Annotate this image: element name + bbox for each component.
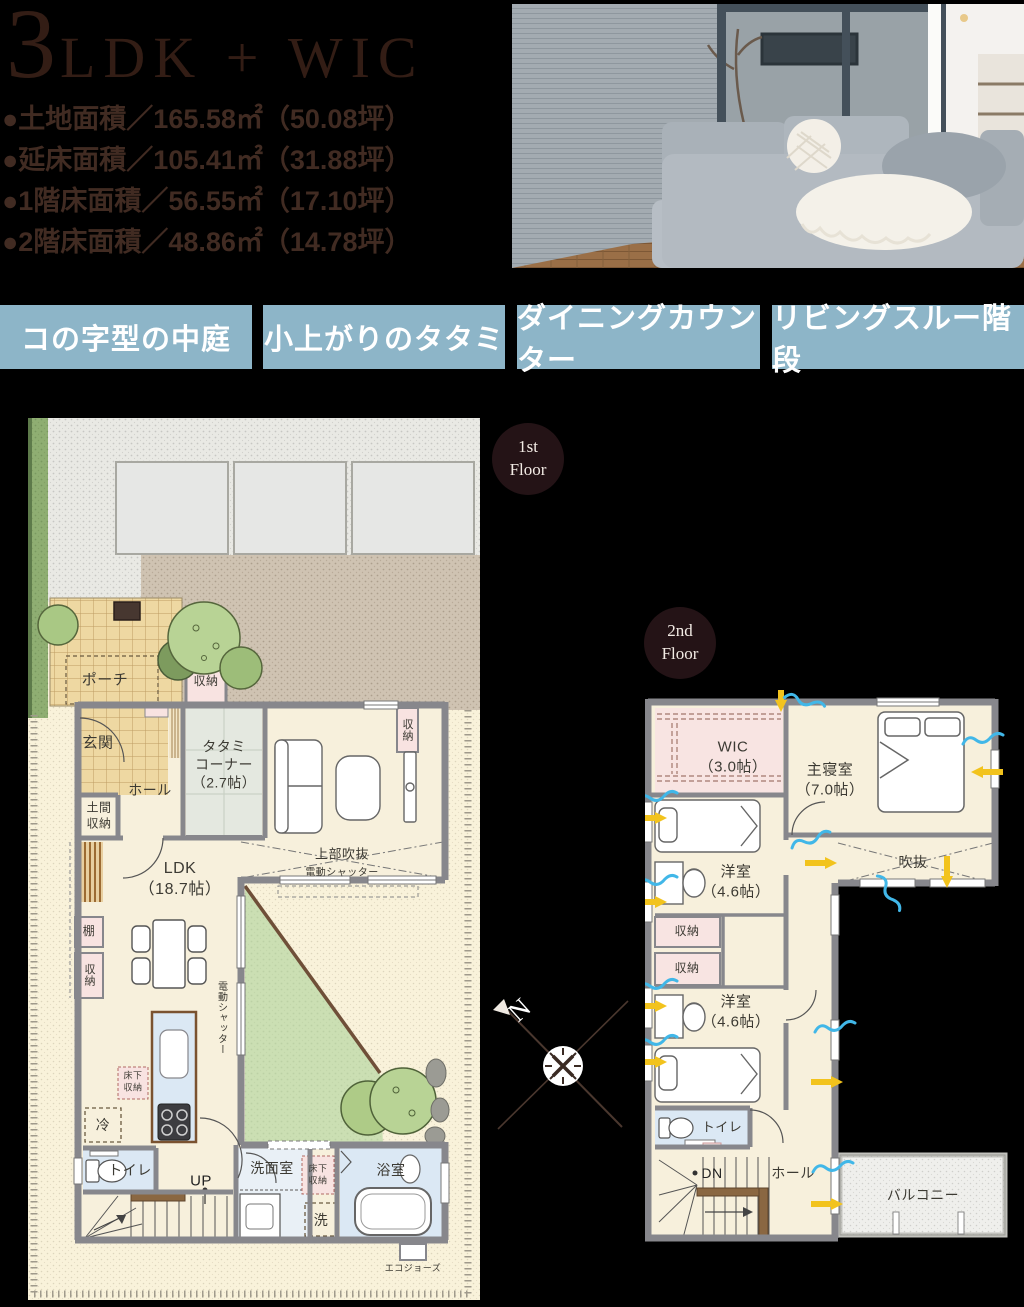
label-doma-storage: 土間 収納 xyxy=(86,800,111,831)
label-shutter-side: 電動シャッター xyxy=(216,981,227,1055)
photo-illustration xyxy=(512,4,1024,268)
label-fridge: 冷 xyxy=(96,1116,111,1134)
label-hall-1f: ホール xyxy=(128,781,172,799)
feature-tag-tatami: 小上がりのタタミ xyxy=(263,305,505,369)
label-left-storage: 収納 xyxy=(83,964,95,987)
spec-first-floor-area: ●1階床面積／56.55㎡（17.10坪） xyxy=(2,181,507,222)
first-floor-plan: ポーチ 収納 玄関 ホール 土間 収納 タタミ コーナー （2.7帖） 収納 上… xyxy=(28,418,480,1300)
label-hall-2f: ホール xyxy=(771,1164,815,1182)
label-storage-2f-b: 収納 xyxy=(674,961,699,977)
label-underfloor-wash: 床下 収納 xyxy=(308,1163,327,1186)
label-porch-storage: 収納 xyxy=(193,674,218,690)
label-water-heater: エコジョーズ xyxy=(385,1263,442,1275)
plan-title-number: 3 xyxy=(6,0,60,94)
vanity xyxy=(240,1194,280,1238)
label-upper-void: 上部吹抜 xyxy=(315,847,369,864)
plan-title: 3 LDK + WIC xyxy=(6,0,425,94)
compass-north-label: N xyxy=(502,993,537,1027)
flyer-page: 3 LDK + WIC ●土地面積／165.58㎡（50.08坪） ●延床面積／… xyxy=(0,0,1024,1307)
label-bedroom2: 洋室 （4.6帖） xyxy=(702,993,771,1032)
hedge-strip xyxy=(28,418,48,718)
label-shutter-top: 電動シャッター xyxy=(305,867,379,880)
knit-pillow-icon xyxy=(787,119,841,173)
double-bed xyxy=(878,712,964,812)
spec-land-area: ●土地面積／165.58㎡（50.08坪） xyxy=(2,99,507,140)
feature-tag-dining-counter: ダイニングカウンター xyxy=(517,305,760,369)
label-master-bedroom: 主寝室 （7.0帖） xyxy=(796,761,865,800)
label-stairs-down: DN xyxy=(701,1164,722,1182)
label-entrance: 玄関 xyxy=(82,733,113,753)
second-floor-badge: 2nd Floor xyxy=(644,607,716,679)
label-tatami-corner: タタミ コーナー （2.7帖） xyxy=(192,738,256,793)
water-heater-unit xyxy=(400,1244,426,1260)
spec-second-floor-area: ●2階床面積／48.86㎡（14.78坪） xyxy=(2,222,507,263)
fur-throw-icon xyxy=(796,174,972,250)
label-storage-2f-a: 収納 xyxy=(674,924,699,940)
label-shelf: 棚 xyxy=(83,924,96,940)
label-underfloor-kitchen: 床下 収納 xyxy=(123,1070,142,1093)
label-bedroom1: 洋室 （4.6帖） xyxy=(702,863,771,902)
compass-icon: N xyxy=(488,993,636,1141)
label-wic: WIC （3.0帖） xyxy=(699,738,768,777)
label-living-storage: 収納 xyxy=(401,719,413,742)
label-stairs-up: UP xyxy=(190,1171,212,1191)
label-void: 吹抜 xyxy=(899,853,928,871)
courtyard xyxy=(245,884,449,1145)
gray-sofa-icon xyxy=(652,116,1024,268)
first-floor-badge: 1st Floor xyxy=(492,423,564,495)
label-toilet-2f: トイレ xyxy=(702,1120,743,1137)
feature-tag-courtyard: コの字型の中庭 xyxy=(0,305,252,369)
label-toilet-1f: トイレ xyxy=(108,1161,152,1179)
area-spec-list: ●土地面積／165.58㎡（50.08坪） ●延床面積／105.41㎡（31.8… xyxy=(2,99,507,263)
label-washroom: 洗面室 xyxy=(250,1159,294,1177)
parking-spaces xyxy=(116,462,474,554)
spec-total-floor-area: ●延床面積／105.41㎡（31.88坪） xyxy=(2,140,507,181)
feature-tag-living-stairs: リビングスルー階段 xyxy=(772,305,1024,369)
label-washer: 洗 xyxy=(314,1211,329,1229)
kitchen-counter xyxy=(152,1012,196,1142)
label-balcony: バルコニー xyxy=(887,1186,959,1204)
living-room-courtyard-photo xyxy=(512,4,1024,268)
label-porch: ポーチ xyxy=(82,670,129,690)
second-floor-plan: WIC （3.0帖） 主寝室 （7.0帖） 吹抜 洋室 （4.6帖） 収納 収納… xyxy=(645,690,1010,1246)
label-ldk: LDK （18.7帖） xyxy=(139,859,222,901)
plan-title-text: LDK + WIC xyxy=(60,29,425,87)
label-bathroom: 浴室 xyxy=(377,1161,406,1179)
